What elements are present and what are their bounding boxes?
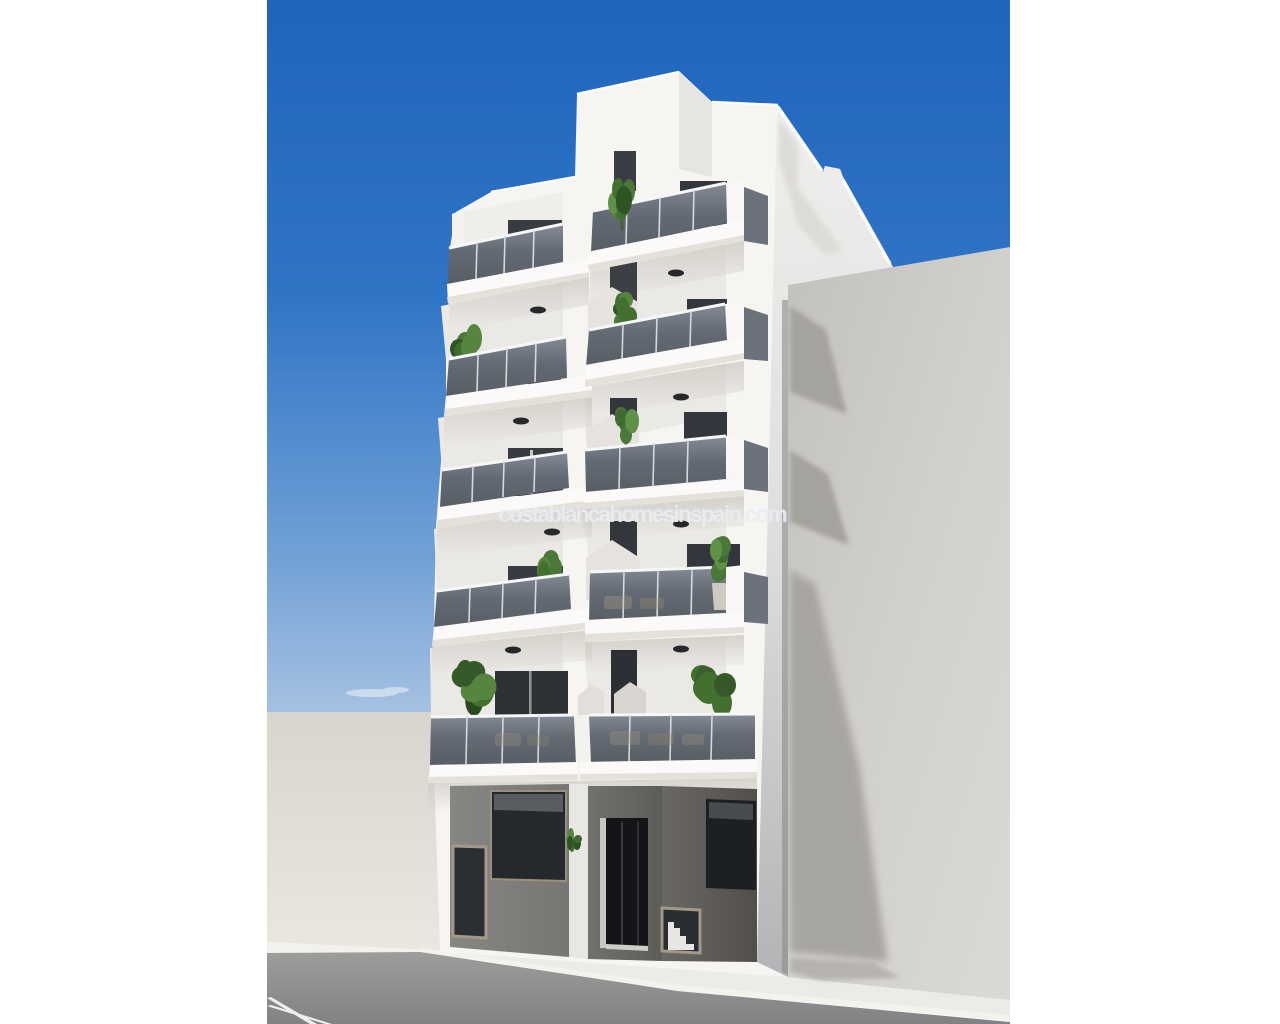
svg-text:costablancahomesinspain.com: costablancahomesinspain.com [498, 501, 788, 527]
